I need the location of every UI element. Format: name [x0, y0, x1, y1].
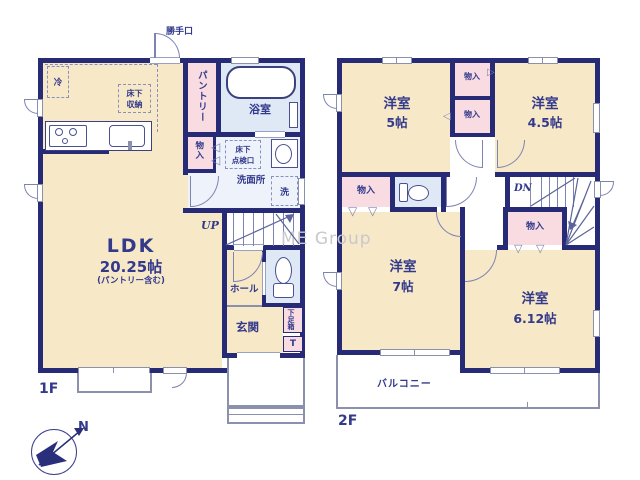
closet-label: 物入: [508, 222, 562, 232]
window-mullion: [542, 58, 543, 63]
wall: [183, 132, 305, 137]
hall-label: ホール: [230, 285, 259, 296]
window: [382, 57, 412, 64]
washbasin-bowl-icon: [275, 144, 292, 164]
balcony-divider: [527, 402, 528, 408]
bathtub-icon: [226, 66, 296, 99]
room5-size: 5帖: [367, 116, 427, 130]
floor1-label: 1F: [39, 381, 58, 397]
room45-name: 洋室: [515, 97, 575, 113]
folding-door-icon: ◁: [211, 141, 220, 153]
stairs-down-label: DN: [514, 183, 532, 195]
back-door-opening: [150, 57, 180, 64]
stair-tread: [557, 177, 558, 207]
door-arc: [447, 177, 477, 207]
wall: [450, 133, 495, 137]
door-arc: [24, 185, 38, 199]
closet-label: 物入: [452, 72, 492, 81]
window-mullion: [396, 58, 397, 63]
wall: [183, 169, 216, 173]
underfloor-storage-label: 床下: [127, 88, 143, 99]
stair-tread: [253, 213, 254, 246]
room7-name: 洋室: [373, 260, 433, 276]
folding-door-icon: ▽: [536, 243, 544, 254]
stove-icon: [49, 125, 87, 147]
folding-door-icon: ▽: [514, 243, 522, 254]
folding-door-icon: ◁: [211, 154, 220, 166]
burner-icon: [62, 138, 68, 144]
stair-tread: [549, 177, 550, 207]
wall: [497, 245, 508, 250]
folding-door-icon: ▽: [348, 205, 357, 217]
porch-step: [227, 407, 305, 424]
washer-box: 洗: [271, 176, 298, 206]
underfloor-hatch-label: 床下: [236, 144, 251, 155]
toilet-bowl-icon: [408, 185, 429, 201]
refrigerator-label: 冷: [54, 76, 63, 88]
stair-tread: [565, 177, 566, 207]
shoe-cabinet-t-label: T: [283, 339, 303, 349]
closet-label: 物入: [342, 186, 390, 196]
pantry-label: パントリー: [195, 70, 206, 123]
floor-plan-canvas: ◁ ◁ 冷 床下 収納 床下 点検口: [0, 0, 640, 480]
underfloor-storage-label: 収納: [127, 99, 143, 110]
window: [231, 57, 259, 64]
terrace-step: [77, 373, 152, 393]
overhead-cabinet-dash: [45, 64, 157, 65]
window: [528, 57, 558, 64]
window: [593, 103, 600, 133]
kitchen-sink-icon: [109, 125, 145, 147]
wall: [495, 172, 600, 177]
underfloor-storage-box: 床下 収納: [118, 84, 151, 113]
watermark: ME Group: [281, 229, 372, 249]
window: [593, 310, 600, 337]
entrance-label: 玄関: [236, 321, 259, 334]
shoe-cabinet-label: 下足箱: [287, 309, 295, 330]
stairs-up-label: UP: [201, 220, 219, 233]
toilet-tank-icon: [273, 283, 294, 298]
porch-step-line: [229, 414, 303, 415]
bathroom-label: 浴室: [240, 104, 280, 117]
faucet-icon: [128, 141, 132, 150]
washroom-label: 洗面所: [227, 176, 275, 187]
wall: [390, 177, 395, 207]
wall: [337, 58, 600, 63]
window: [380, 349, 450, 356]
door-arc: [323, 95, 337, 109]
underfloor-hatch-box: 床下 点検口: [225, 140, 261, 169]
bath-door-opening: [255, 131, 285, 138]
toilet-tank-icon: [399, 183, 408, 202]
balcony-rail: [336, 407, 600, 409]
stairs-door-opening: [234, 244, 263, 251]
shower-panel-icon: [289, 102, 298, 128]
underfloor-hatch-label: 点検口: [232, 155, 255, 166]
room5-name: 洋室: [367, 97, 427, 113]
door-arc: [600, 182, 614, 196]
washer-label: 洗: [280, 185, 289, 198]
balcony-rail: [598, 373, 600, 409]
floor2-label: 2F: [338, 413, 357, 429]
window-mullion: [524, 368, 525, 373]
hinged-door-icon: ◁: [443, 112, 451, 122]
stair-tread: [243, 213, 244, 246]
wall: [216, 58, 221, 137]
window: [490, 367, 560, 374]
stair-tread: [541, 177, 542, 207]
balcony-rail: [336, 355, 338, 409]
refrigerator-box: 冷: [47, 66, 69, 98]
stairs-2f-arrow-icon: [568, 221, 577, 230]
wall: [567, 245, 600, 250]
porch: [227, 358, 305, 407]
balcony-label: バルコニー: [377, 379, 432, 391]
back-door-label: 勝手口: [166, 27, 193, 37]
wall: [390, 207, 437, 212]
compass-circle: [31, 429, 77, 475]
room612-size: 6.12帖: [505, 312, 565, 326]
window: [298, 178, 305, 205]
room612-name: 洋室: [505, 292, 565, 308]
burner-icon: [69, 128, 77, 136]
stair-tread: [263, 213, 264, 246]
toilet-door-opening: [262, 262, 266, 295]
door-arc: [455, 140, 483, 168]
closet-label: 物入: [452, 110, 492, 119]
stair-tread: [273, 213, 274, 246]
ldk-size: 20.25帖: [81, 259, 181, 276]
door-arc: [323, 273, 337, 287]
wall: [503, 207, 567, 212]
burner-icon: [55, 128, 63, 136]
door-arc: [172, 373, 187, 388]
room45-size: 4.5帖: [515, 116, 575, 130]
folding-door-icon: ▽: [368, 205, 377, 217]
compass-north-label: N: [78, 421, 89, 436]
overhead-cabinet-dash: [157, 64, 158, 132]
closet-label: 物入: [193, 141, 203, 160]
stair-tread: [573, 177, 574, 207]
room7-size: 7帖: [373, 280, 433, 294]
entry-step-line: [227, 305, 262, 307]
ldk-name: LDK: [81, 236, 181, 258]
door-arc: [24, 100, 38, 114]
wall: [222, 208, 227, 353]
wall: [450, 96, 495, 100]
stair-tread: [233, 213, 234, 246]
wall: [183, 58, 188, 175]
wall: [505, 172, 510, 207]
ldk-note: (パントリー含む): [81, 277, 181, 287]
window-mullion: [414, 350, 415, 355]
toilet-bowl-icon: [275, 257, 292, 284]
wall: [183, 208, 305, 213]
